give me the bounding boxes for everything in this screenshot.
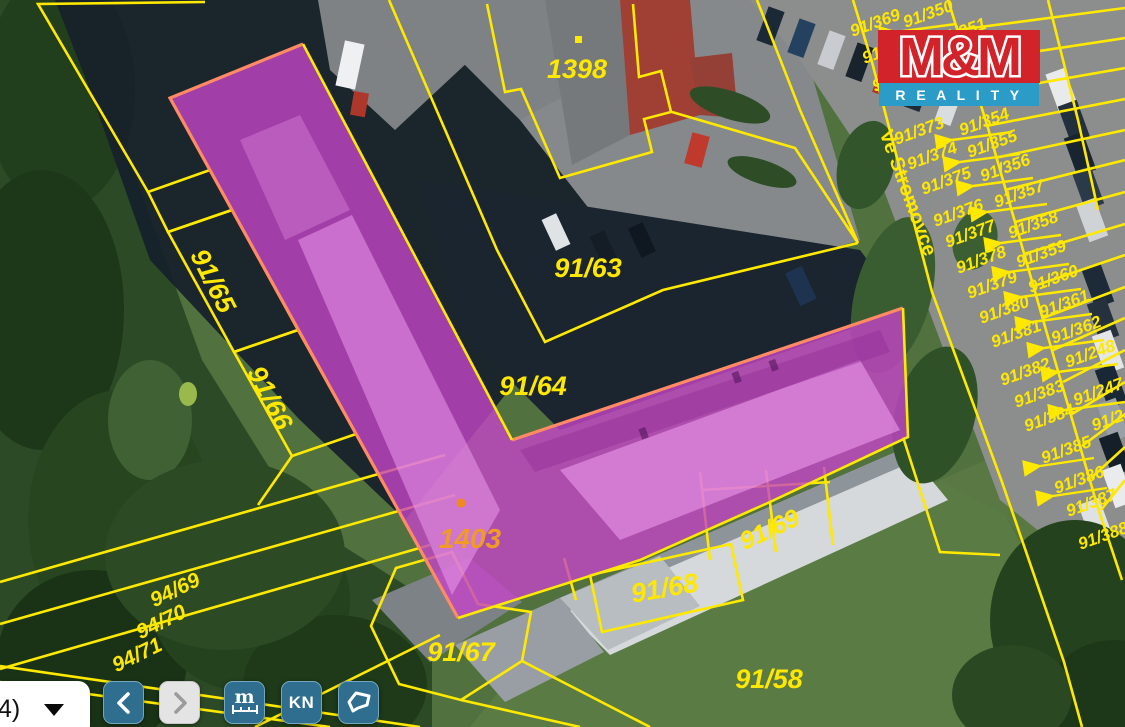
scale-dropdown-value: 4) (0, 695, 20, 724)
ruler-icon (230, 704, 260, 716)
logo-mm-text: M&M (899, 28, 1019, 87)
scale-dropdown[interactable]: 4) (0, 681, 90, 727)
chevron-down-icon (44, 704, 64, 716)
definition-point (457, 499, 466, 508)
back-button[interactable] (103, 681, 144, 724)
chevron-right-icon (169, 689, 191, 717)
polygon-icon (345, 689, 373, 717)
measure-button[interactable]: m (224, 681, 265, 724)
parcel-label: 91/64 (499, 371, 567, 401)
parcel-label: 91/67 (427, 637, 497, 667)
map-viewer: 91/65 91/66 1398 91/63 91/64 1403 91/67 … (0, 0, 1125, 727)
mm-reality-logo: M&M R E A L I T Y (876, 28, 1042, 115)
highlight-parcel-label: 1403 (439, 523, 502, 554)
parcel-label: 1398 (547, 54, 607, 84)
parcel-label: 91/63 (554, 253, 622, 283)
cadastre-button[interactable]: KN (281, 681, 322, 724)
forward-button[interactable] (159, 681, 200, 724)
polygon-select-button[interactable] (338, 681, 379, 724)
parcel-label: 91/58 (735, 664, 803, 694)
measure-icon: m (234, 690, 254, 704)
chevron-left-icon (113, 689, 135, 717)
kn-label: KN (289, 693, 315, 713)
logo-reality-text: R E A L I T Y (895, 87, 1022, 103)
